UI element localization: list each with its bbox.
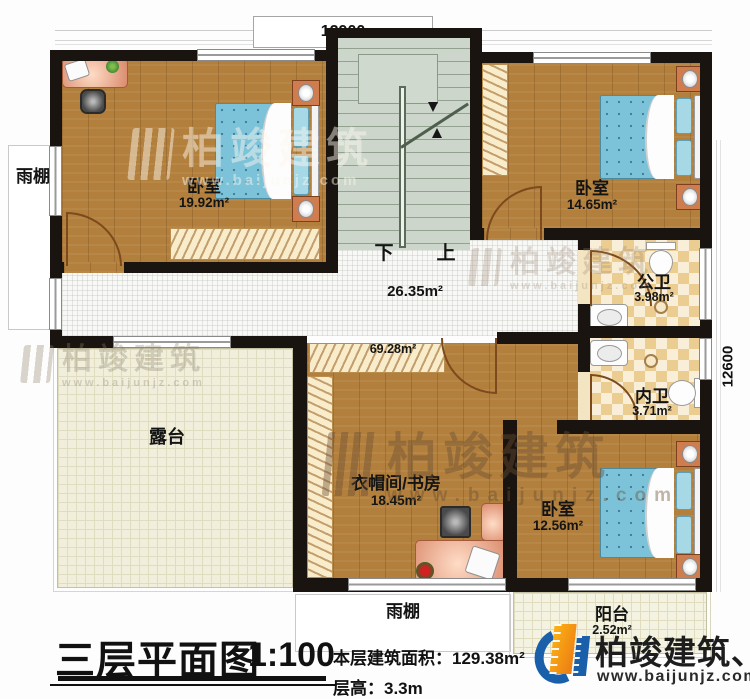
- sill-line-right: [716, 140, 717, 592]
- bed-blanket: [645, 95, 674, 179]
- brand-logo-icon: [535, 622, 593, 694]
- area-label-upper: 69.28m²: [370, 343, 417, 357]
- brand-logo: 柏竣建筑、 www.baijunjz.com: [535, 622, 750, 697]
- terrace: [57, 348, 293, 588]
- dim-line-left: [55, 30, 253, 31]
- sink-basin: [597, 309, 622, 326]
- window: [348, 578, 506, 591]
- closet-cloakroom-left: [307, 376, 333, 578]
- floor-plan-page: 12900 12600 雨棚 雨棚: [0, 0, 750, 699]
- plant-icon: [106, 60, 119, 73]
- window: [49, 146, 62, 216]
- area-label-public-bath: 3.98m²: [634, 291, 674, 305]
- window: [568, 578, 696, 591]
- room-label-terrace: 露台: [149, 428, 185, 448]
- wall: [470, 28, 482, 240]
- bed-se: [600, 468, 703, 558]
- desk-chair: [80, 89, 106, 114]
- door-opening: [578, 250, 590, 304]
- window: [533, 52, 651, 64]
- room-label-bedroom-se: 卧室: [541, 501, 575, 520]
- wall: [326, 28, 338, 273]
- room-label-bedroom-nw: 卧室: [187, 178, 221, 197]
- brand-name: 柏竣建筑、: [595, 626, 750, 674]
- bed-blanket: [645, 468, 674, 558]
- bed-pillow: [293, 155, 309, 195]
- sink-basin: [597, 345, 622, 362]
- wall: [578, 326, 712, 338]
- canopy-left-label: 雨棚: [16, 168, 50, 187]
- bed-blanket: [261, 103, 291, 199]
- window: [197, 49, 315, 61]
- stair-label-up: 上: [436, 244, 455, 265]
- shower-head-icon: [644, 354, 658, 368]
- floor-height-line: 层高：3.3m: [333, 674, 423, 699]
- area-label-bedroom-ne: 14.65m²: [567, 198, 617, 213]
- stair-label-down: 下: [374, 244, 393, 265]
- logo-blue-tower-icon: [573, 636, 590, 676]
- stair-rail: [399, 86, 406, 248]
- floor-area-line: 本层建筑面积：129.38m²: [333, 644, 525, 669]
- canopy-bottom-label: 雨棚: [386, 603, 420, 622]
- bed-nw: [215, 103, 319, 199]
- wall: [503, 420, 517, 592]
- watermark-logo-icon: [20, 345, 54, 383]
- toilet-icon: [646, 242, 676, 250]
- room-label-bedroom-ne: 卧室: [575, 180, 609, 199]
- door-opening: [578, 372, 590, 420]
- plan-scale: 1:100: [248, 636, 335, 675]
- toilet-bowl-icon: [668, 380, 696, 406]
- monitor-icon: [440, 506, 471, 538]
- sink-icon: [590, 340, 628, 366]
- wall: [293, 336, 307, 592]
- area-label-bedroom-se: 12.56m²: [533, 519, 583, 534]
- area-label-hallway: 26.35m²: [387, 284, 443, 301]
- room-label-cloak-study: 衣帽间/书房: [351, 475, 441, 494]
- title-underline: [58, 676, 326, 681]
- window: [113, 336, 231, 348]
- title-underline-thin: [50, 684, 335, 686]
- bed-ne: [600, 95, 703, 179]
- bed-pillow: [676, 140, 692, 176]
- nightstand: [292, 196, 320, 222]
- stair-landing: [358, 54, 438, 104]
- wall: [332, 28, 476, 38]
- bed-pillow: [676, 516, 692, 554]
- stair-arrow-down-icon: [428, 102, 438, 112]
- nightstand: [292, 80, 320, 106]
- area-label-cloak-study: 18.45m²: [371, 494, 421, 509]
- area-label-bedroom-nw: 19.92m²: [179, 196, 229, 211]
- bed-pillow: [676, 98, 692, 134]
- window: [699, 338, 712, 380]
- closet-bedroom-nw: [170, 228, 320, 260]
- wall: [497, 332, 585, 344]
- bed-pillow: [293, 107, 309, 147]
- wall: [700, 52, 712, 592]
- dimension-right-value: 12600: [720, 327, 737, 407]
- bed-headboard: [311, 103, 319, 199]
- bed-pillow: [676, 472, 692, 510]
- brand-url: www.baijunjz.com: [597, 668, 750, 686]
- closet-bedroom-ne: [482, 64, 508, 176]
- window: [49, 278, 62, 330]
- window: [699, 248, 712, 320]
- area-label-private-bath: 3.71m²: [632, 405, 672, 419]
- stair-arrow-up-icon: [432, 128, 442, 138]
